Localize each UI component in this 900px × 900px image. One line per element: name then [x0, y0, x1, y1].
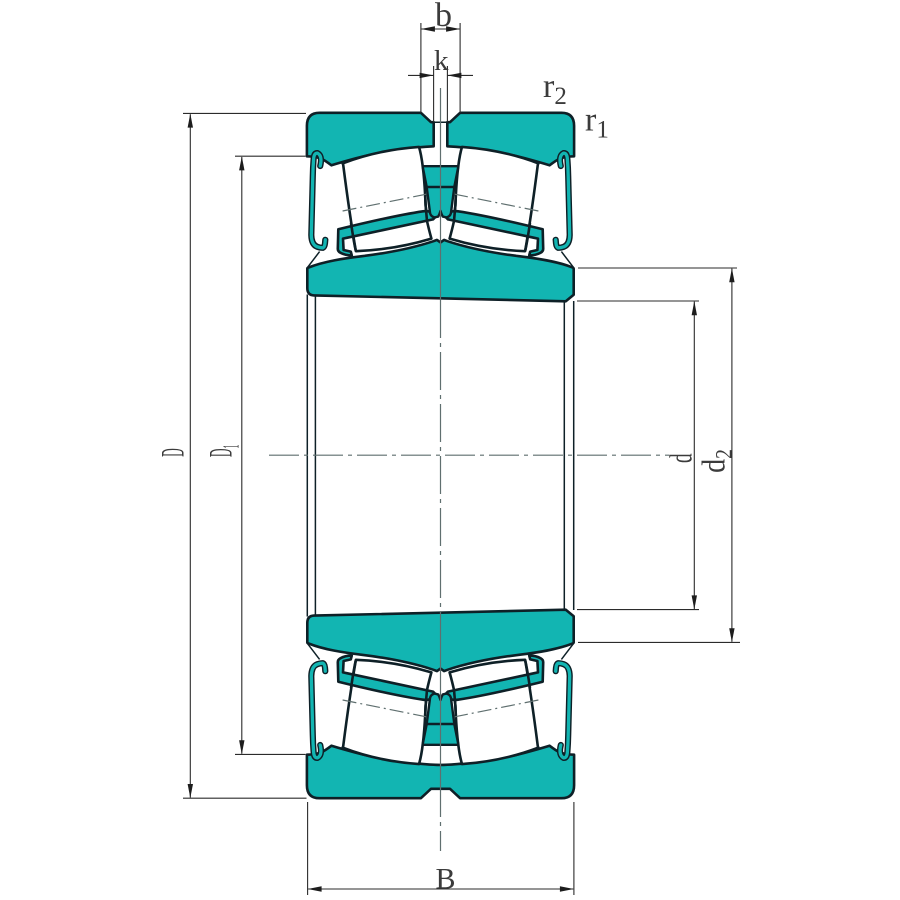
svg-text:d2: d2	[695, 449, 736, 473]
svg-text:D1: D1	[204, 444, 244, 457]
svg-text:r1: r1	[585, 102, 609, 144]
svg-text:k: k	[434, 45, 449, 77]
svg-text:B: B	[435, 863, 455, 896]
svg-text:b: b	[435, 0, 452, 34]
svg-text:d: d	[662, 453, 698, 463]
svg-text:r2: r2	[543, 68, 567, 110]
svg-text:D: D	[156, 448, 192, 457]
